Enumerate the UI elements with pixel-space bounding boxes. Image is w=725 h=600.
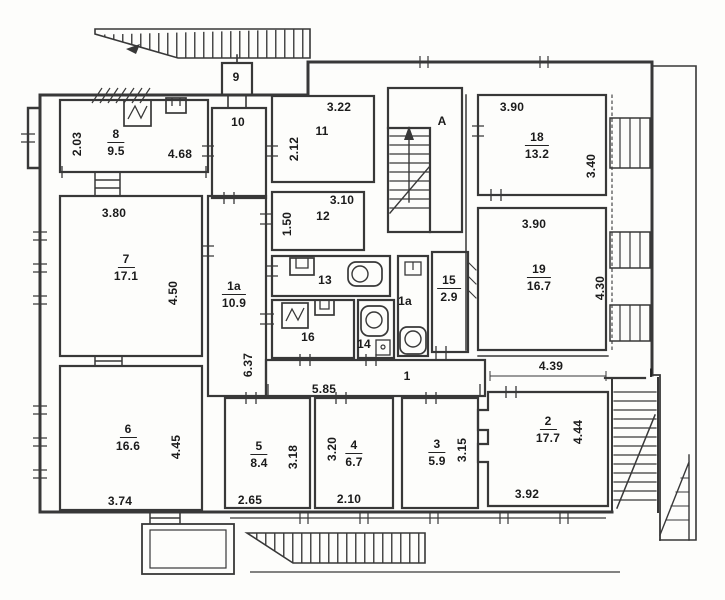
room-3-area: 5.9 <box>428 453 445 469</box>
stairwell-i-label: I <box>649 366 653 380</box>
room-19-number: 19 <box>527 262 551 278</box>
room-11-number: 11 <box>315 124 328 138</box>
room-5-label: 5 8.4 <box>250 439 267 471</box>
dim-room6-height: 4.45 <box>169 435 183 459</box>
room-18-label: 18 13.2 <box>525 130 549 162</box>
dim-room2-height: 4.44 <box>571 420 585 444</box>
balcony <box>142 524 234 574</box>
corridor-1a-label: 1a 10.9 <box>222 279 246 311</box>
dim-room4-height: 3.20 <box>325 437 339 461</box>
room-15-label: 15 2.9 <box>437 273 461 305</box>
room-5-area: 8.4 <box>250 455 267 471</box>
room-14-number: 14 <box>357 337 371 351</box>
shaft-ladders <box>95 172 180 524</box>
dim-room2-bottom-width: 3.92 <box>515 487 539 501</box>
dim-room4-width: 2.10 <box>337 492 361 506</box>
dim-room7-height: 4.50 <box>166 281 180 305</box>
room-5-number: 5 <box>251 439 268 455</box>
room-15-number: 15 <box>437 273 461 289</box>
room-3-number: 3 <box>429 437 446 453</box>
room-8-number: 8 <box>108 127 125 143</box>
room-6-label: 6 16.6 <box>116 422 140 454</box>
room-4-area: 6.7 <box>345 454 362 470</box>
dim-corridor1a-length: 6.37 <box>241 353 255 377</box>
dim-hall1-length: 5.85 <box>312 382 336 396</box>
room-2-label: 2 17.7 <box>536 414 560 446</box>
room-15-area: 2.9 <box>440 289 457 305</box>
room-18-number: 18 <box>525 130 549 146</box>
dim-room6-width: 3.74 <box>108 494 132 508</box>
stairwell-a-label: A <box>438 114 447 128</box>
exterior-stair-bottom-outline <box>247 533 620 572</box>
room-19-area: 16.7 <box>527 278 551 294</box>
stairwell-i <box>612 378 658 512</box>
floor-plan-linework <box>0 0 725 600</box>
dim-room11-height: 2.12 <box>287 137 301 161</box>
room-6-number: 6 <box>120 422 137 438</box>
room-3-label: 3 5.9 <box>428 437 445 469</box>
room-10-number: 10 <box>231 115 245 129</box>
room-8-area: 9.5 <box>107 143 124 159</box>
corridor-1a-area: 10.9 <box>222 295 246 311</box>
room-8-label: 8 9.5 <box>107 127 124 159</box>
room-16-number: 16 <box>301 330 315 344</box>
sink-room8-icon <box>124 100 151 126</box>
room-12-number: 12 <box>316 209 330 223</box>
room-4-label: 4 6.7 <box>345 438 362 470</box>
vent-room16-icon <box>315 300 334 315</box>
room-6-area: 16.6 <box>116 438 140 454</box>
dim-room5-width: 2.65 <box>238 493 262 507</box>
floor-plan: 8 9.5 7 17.1 6 16.6 5 8.4 4 6.7 3 5.9 2 … <box>0 0 725 600</box>
dim-room12-width: 3.10 <box>330 193 354 207</box>
dim-room3-height: 3.15 <box>455 438 469 462</box>
boiler-room13-icon <box>348 262 382 286</box>
room-2-area: 17.7 <box>536 430 560 446</box>
room-19-label: 19 16.7 <box>527 262 551 294</box>
room-7-area: 17.1 <box>114 268 138 284</box>
dim-room12-height: 1.50 <box>280 212 294 236</box>
toilet-lobby-icon <box>400 327 426 354</box>
corridor-1a-number: 1a <box>222 279 246 295</box>
dim-room19-height: 4.30 <box>593 276 607 300</box>
room-2-number: 2 <box>540 414 557 430</box>
dim-room2-top-width: 4.39 <box>539 359 563 373</box>
room-9-number: 9 <box>233 70 240 84</box>
lobby-1a-number: 1a <box>398 294 412 308</box>
dim-room11-width: 3.22 <box>327 100 351 114</box>
room-7-number: 7 <box>118 252 135 268</box>
dim-room18-height: 3.40 <box>584 154 598 178</box>
dim-room8-width: 4.68 <box>168 147 192 161</box>
plumbing-fixtures <box>124 98 426 355</box>
dim-room18-width: 3.90 <box>500 100 524 114</box>
dim-room7-width: 3.80 <box>102 206 126 220</box>
exterior-stair-top-outline <box>95 29 310 58</box>
stairwell-a <box>390 126 430 213</box>
room-13-number: 13 <box>318 273 332 287</box>
room-18-area: 13.2 <box>525 146 549 162</box>
room-4-number: 4 <box>346 438 363 454</box>
room-7-label: 7 17.1 <box>114 252 138 284</box>
sink-room16-icon <box>282 303 308 328</box>
vent-lobby-icon <box>405 262 421 275</box>
vent-room13-icon <box>290 258 314 275</box>
dim-room8-height: 2.03 <box>70 132 84 156</box>
dim-room19-width: 3.90 <box>522 217 546 231</box>
dim-room5-height: 3.18 <box>286 445 300 469</box>
right-strip-blocks <box>610 118 650 341</box>
hall-1-number: 1 <box>404 369 411 383</box>
